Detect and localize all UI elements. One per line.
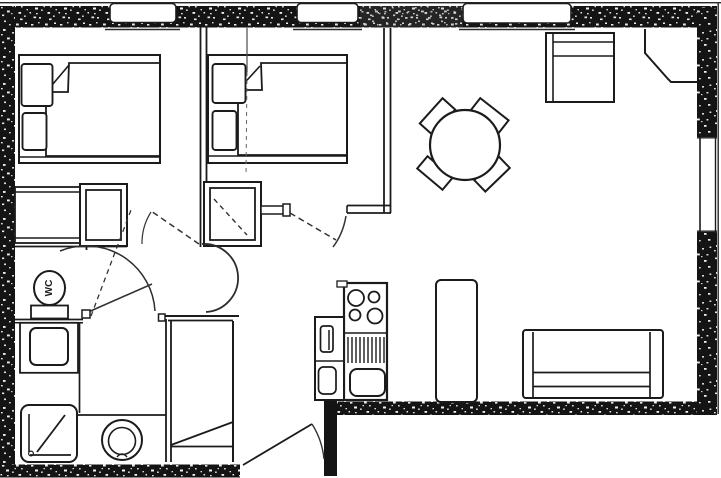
svg-text:WC: WC bbox=[44, 280, 55, 297]
